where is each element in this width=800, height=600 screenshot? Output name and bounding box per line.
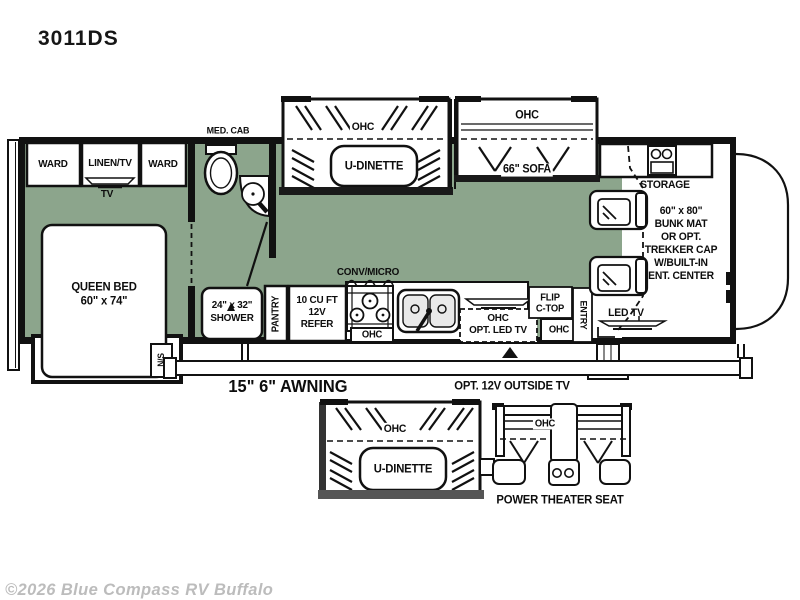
entry-label: ENTRY bbox=[577, 300, 588, 329]
bunk-line-2: BUNK MAT bbox=[655, 218, 708, 230]
conv-micro-label: CONV/MICRO bbox=[337, 267, 399, 279]
outside-tv-marker bbox=[502, 347, 518, 358]
bunk-line-6: ENT. CENTER bbox=[648, 270, 714, 282]
opt-led-tv-label: OPT. LED TV bbox=[469, 325, 527, 337]
cab-seat-passenger bbox=[590, 257, 647, 295]
windshield-curve bbox=[736, 154, 788, 329]
ctop-label: C-TOP bbox=[536, 303, 564, 314]
awning-assembly bbox=[164, 344, 752, 378]
cab-seat-driver bbox=[590, 191, 647, 229]
bunk-line-5: W/BUILT-IN bbox=[654, 257, 708, 269]
med-cab-label: MED. CAB bbox=[207, 127, 250, 138]
floorplan-page: 3011DS WARD LINEN/TV WARD TV QUEEN BED 6… bbox=[0, 0, 800, 600]
theater-ohc-label: OHC bbox=[533, 418, 557, 429]
dinette-ohc-label: OHC bbox=[350, 121, 376, 133]
bunk-line-4: TREKKER CAP bbox=[645, 244, 718, 256]
dealer-watermark: ©2026 Blue Compass RV Buffalo bbox=[5, 582, 273, 599]
queen-bed-size: 60" x 74" bbox=[81, 294, 128, 307]
awning-label: 15" 6" AWNING bbox=[228, 377, 347, 397]
range-ohc-label: OHC bbox=[362, 329, 382, 340]
option-dinette-ohc-label: OHC bbox=[382, 423, 408, 435]
range-icon bbox=[347, 286, 393, 331]
sofa-ohc-label: OHC bbox=[513, 110, 540, 123]
u-dinette-label: U-DINETTE bbox=[345, 159, 403, 172]
entry-ohc-label: OHC bbox=[549, 324, 569, 335]
option-dinette-slide bbox=[318, 399, 494, 499]
queen-bed-label: QUEEN BED bbox=[71, 280, 136, 293]
nightstand-label: N/S bbox=[156, 353, 166, 367]
flip-label: FLIP bbox=[540, 292, 560, 303]
ward-left-label: WARD bbox=[38, 159, 67, 171]
linen-tv-label: LINEN/TV bbox=[88, 158, 131, 170]
bunk-line-1: 60" x 80" bbox=[660, 205, 703, 217]
kitchen-sink-icon bbox=[398, 290, 459, 332]
sink-ohc-label: OHC bbox=[487, 313, 508, 325]
refer-label-1: 10 CU FT bbox=[296, 295, 337, 307]
cooktop-icon bbox=[648, 146, 676, 175]
bedroom-area bbox=[27, 143, 186, 382]
toilet-icon bbox=[205, 145, 237, 194]
storage-label: STORAGE bbox=[640, 179, 690, 191]
dinette-slide bbox=[279, 96, 456, 195]
pantry-label: PANTRY bbox=[270, 296, 281, 332]
sofa-label: 66" SOFA bbox=[501, 164, 553, 177]
power-theater-seat bbox=[492, 403, 632, 485]
rear-slide-bar bbox=[8, 140, 19, 370]
bunk-line-3: OR OPT. bbox=[661, 231, 701, 243]
model-number: 3011DS bbox=[38, 28, 119, 49]
refer-label-2: 12V bbox=[308, 307, 325, 319]
led-tv-label: LED TV bbox=[608, 307, 644, 319]
outside-tv-label: OPT. 12V OUTSIDE TV bbox=[454, 379, 570, 392]
tv-label: TV bbox=[101, 189, 113, 201]
power-theater-seat-label: POWER THEATER SEAT bbox=[496, 493, 623, 506]
option-u-dinette-label: U-DINETTE bbox=[374, 462, 432, 475]
refer-label-3: REFER bbox=[301, 319, 334, 331]
shower-size-label: 24" x 32" bbox=[212, 300, 253, 312]
shower-label: SHOWER bbox=[210, 313, 253, 325]
ward-right-label: WARD bbox=[148, 159, 177, 171]
